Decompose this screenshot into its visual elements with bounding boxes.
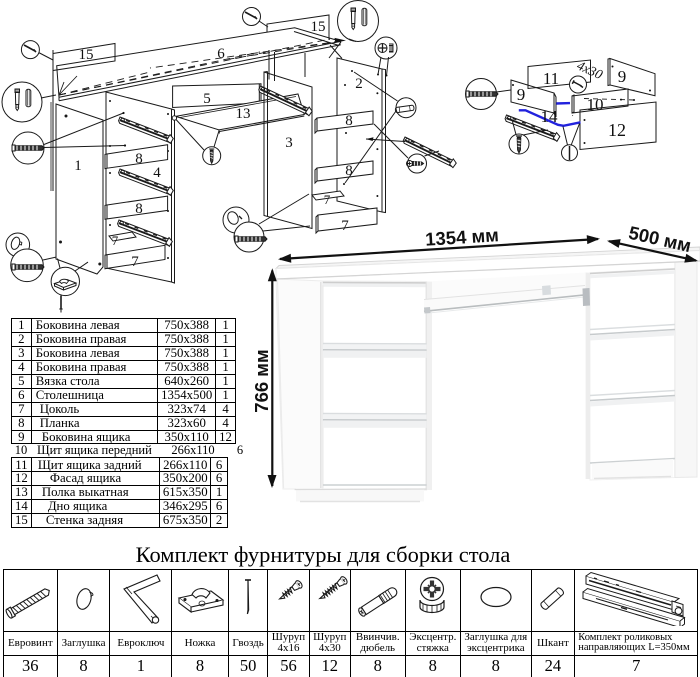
svg-text:10: 10 [587, 95, 604, 114]
svg-text:8: 8 [135, 151, 143, 167]
svg-text:5: 5 [203, 91, 211, 107]
svg-text:11: 11 [543, 69, 559, 88]
svg-text:2: 2 [355, 76, 363, 92]
svg-text:12: 12 [608, 120, 626, 140]
svg-text:9: 9 [618, 67, 627, 86]
svg-text:9: 9 [517, 85, 526, 104]
svg-text:4: 4 [153, 165, 161, 181]
svg-text:14: 14 [541, 107, 559, 126]
svg-text:13: 13 [236, 106, 251, 122]
svg-text:8: 8 [345, 113, 353, 129]
svg-text:7: 7 [324, 192, 331, 207]
svg-text:3: 3 [285, 135, 293, 151]
svg-text:1: 1 [74, 158, 82, 174]
svg-text:766 мм: 766 мм [251, 349, 272, 412]
svg-text:15: 15 [311, 19, 326, 35]
